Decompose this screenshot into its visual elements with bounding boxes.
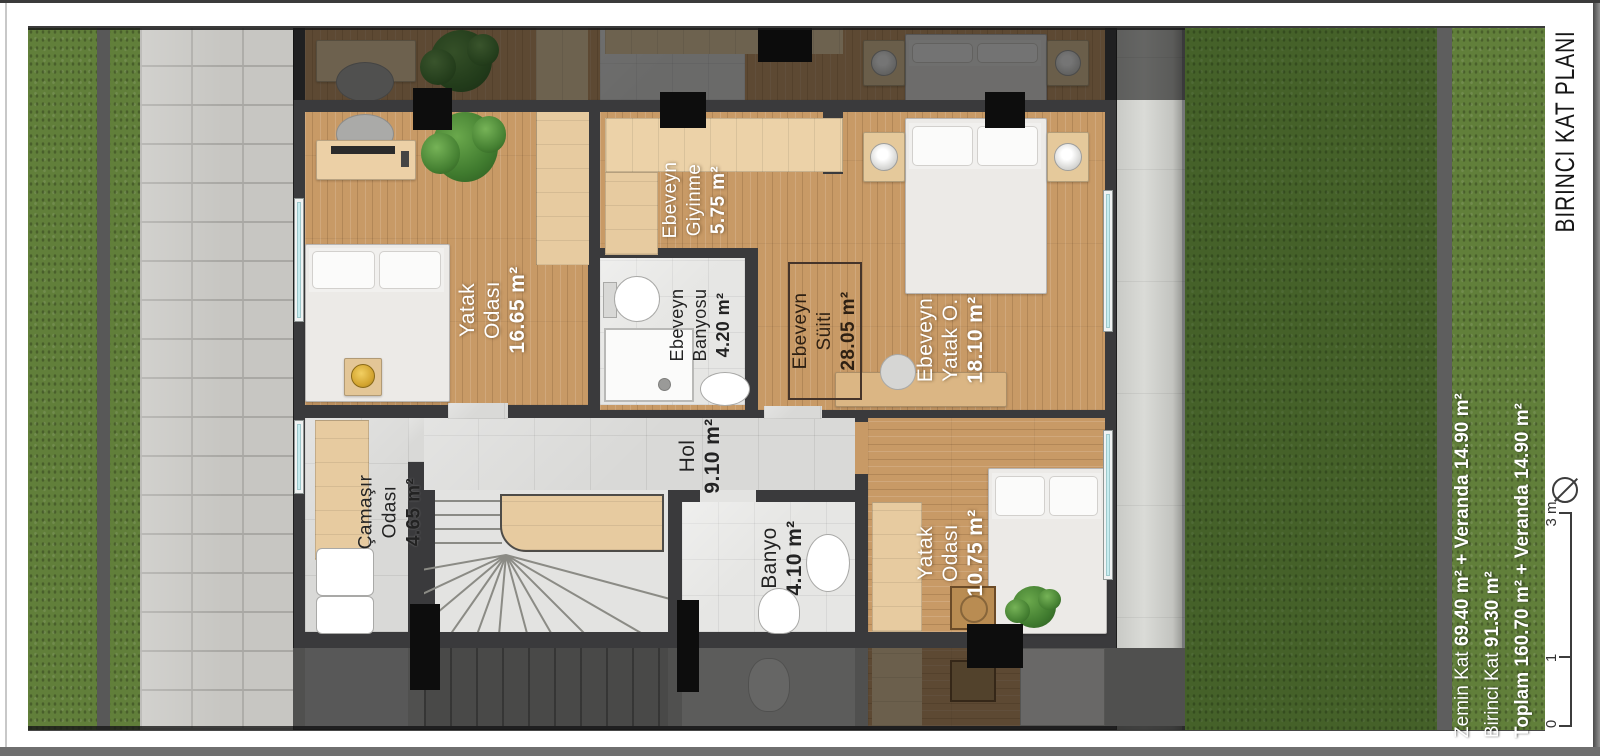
stair-tread bbox=[435, 542, 502, 544]
room-label-hol: Hol 9.10 m² bbox=[674, 396, 726, 516]
plant-icon bbox=[1012, 586, 1056, 628]
stool bbox=[880, 354, 916, 390]
room-area: 28.05 m² bbox=[837, 265, 861, 397]
wardrobe bbox=[605, 172, 658, 255]
room-name: Yatak O. bbox=[938, 260, 963, 420]
room-name: Odası bbox=[379, 430, 403, 595]
doorway bbox=[764, 406, 822, 419]
desk bbox=[316, 140, 416, 180]
stair-tread bbox=[435, 514, 502, 516]
left-grass-strip bbox=[28, 28, 140, 730]
scale-label-1: 1 bbox=[1543, 650, 1559, 666]
sink bbox=[806, 534, 850, 592]
room-name: Ebeveyn bbox=[666, 255, 689, 395]
lamp-icon bbox=[1054, 143, 1082, 171]
monitor bbox=[331, 146, 395, 154]
desk-item bbox=[401, 151, 409, 167]
window bbox=[294, 420, 304, 494]
room-name: Yatak bbox=[455, 225, 480, 395]
room-label-yatak-odasi-1: Yatak Odası 16.65 m² bbox=[452, 225, 532, 395]
toilet bbox=[614, 276, 660, 322]
stair-tread bbox=[435, 528, 502, 530]
scale-bar: 3 m 1 0 bbox=[1530, 495, 1590, 740]
room-hol-floor bbox=[422, 418, 855, 492]
column bbox=[677, 600, 699, 692]
room-name: Banyosu bbox=[689, 255, 712, 395]
scale-tick bbox=[1559, 512, 1572, 514]
room-name: Giyinme bbox=[683, 130, 707, 270]
floor-plan-page: Zemin Kat 69.40 m² + Veranda 14.90 m² Bi… bbox=[0, 0, 1600, 756]
room-label-banyo: Banyo 4.10 m² bbox=[756, 498, 808, 618]
eave-seam bbox=[1117, 28, 1185, 730]
frame-right-edge bbox=[1593, 3, 1600, 747]
doorway bbox=[855, 422, 868, 474]
stair-tread bbox=[424, 554, 506, 580]
room-label-ebeveyn-yatak-odasi: Ebeveyn Yatak O. 18.10 m² bbox=[912, 260, 988, 420]
garden-path bbox=[97, 28, 110, 730]
window bbox=[1103, 190, 1113, 332]
stair-tread bbox=[435, 500, 502, 502]
room-label-yatak-odasi-2: Yatak Odası 10.75 m² bbox=[912, 478, 988, 628]
window bbox=[294, 198, 304, 322]
scale-tick bbox=[1559, 725, 1572, 727]
scale-tick bbox=[1559, 656, 1572, 658]
room-area: 18.10 m² bbox=[963, 260, 988, 420]
stair-landing bbox=[500, 494, 664, 552]
column bbox=[660, 92, 706, 128]
column bbox=[413, 88, 452, 130]
scale-line bbox=[1570, 512, 1572, 727]
gold-lamp-icon bbox=[351, 364, 375, 388]
summary-line: Birinci Kat 91.30 m² bbox=[1478, 358, 1508, 738]
window bbox=[1103, 430, 1113, 580]
dryer bbox=[316, 596, 374, 634]
room-label-ebeveyn-suiti: Ebeveyn Süiti 28.05 m² bbox=[789, 265, 861, 397]
room-label-ebeveyn-giyinme: Ebeveyn Giyinme 5.75 m² bbox=[658, 130, 732, 270]
room-area: 4.10 m² bbox=[782, 498, 807, 618]
column bbox=[410, 604, 440, 690]
room-name: Ebeveyn bbox=[659, 130, 683, 270]
room-area: 9.10 m² bbox=[700, 396, 725, 516]
column bbox=[967, 624, 1023, 668]
frame-top-edge bbox=[0, 0, 1600, 3]
room-area: 10.75 m² bbox=[963, 478, 988, 628]
room-name: Ebeveyn bbox=[913, 260, 938, 420]
hedge-band bbox=[1185, 28, 1437, 730]
scale-label-3m: 3 m bbox=[1543, 497, 1559, 531]
room-area: 4.65 m² bbox=[403, 430, 427, 595]
walkway-pavement bbox=[140, 28, 293, 730]
column bbox=[985, 92, 1025, 128]
room-name: Banyo bbox=[757, 498, 782, 618]
wardrobe bbox=[536, 112, 589, 265]
frame-left-edge bbox=[5, 3, 7, 747]
balcony-eave-strip bbox=[1117, 28, 1185, 730]
plan-title: BIRINCI KAT PLANI bbox=[1547, 19, 1584, 244]
staircase bbox=[424, 490, 668, 632]
room-label-ebeveyn-banyosu: Ebeveyn Banyosu 4.20 m² bbox=[665, 255, 735, 395]
room-label-camasir-odasi: Çamaşır Odası 4.65 m² bbox=[354, 430, 428, 595]
scale-label-0: 0 bbox=[1543, 716, 1559, 732]
room-name: Odası bbox=[938, 478, 963, 628]
room-name: Çamaşır bbox=[355, 430, 379, 595]
room-area: 5.75 m² bbox=[707, 130, 731, 270]
room-area: 16.65 m² bbox=[505, 225, 530, 395]
room-name: Odası bbox=[480, 225, 505, 395]
summary-line: Zemin Kat 69.40 m² + Veranda 14.90 m² bbox=[1448, 358, 1478, 738]
room-name: Ebeveyn bbox=[789, 265, 813, 397]
doorway bbox=[448, 403, 508, 419]
area-summary: Zemin Kat 69.40 m² + Veranda 14.90 m² Bi… bbox=[1448, 358, 1540, 738]
room-area: 4.20 m² bbox=[712, 255, 735, 395]
frame-bottom-edge bbox=[0, 747, 1600, 756]
room-name: Yatak bbox=[913, 478, 938, 628]
room-name: Hol bbox=[675, 396, 700, 516]
lamp-icon bbox=[870, 143, 898, 171]
room-name: Süiti bbox=[813, 265, 837, 397]
